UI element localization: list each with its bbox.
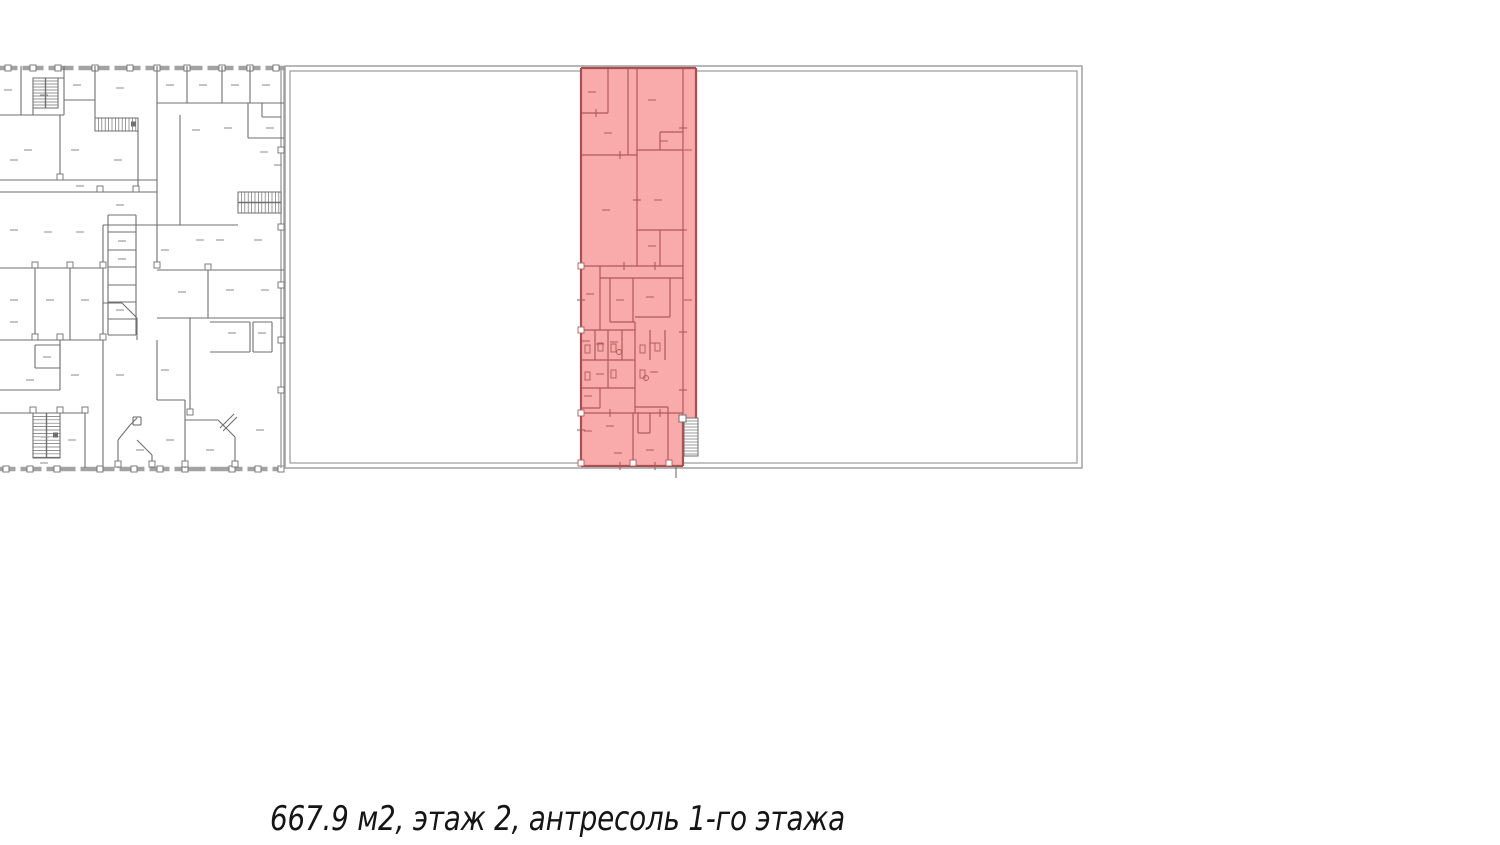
floor-plan-viewer: 667.9 м2, этаж 2, антресоль 1-го этажа — [0, 0, 1500, 845]
highlighted-premises-area[interactable] — [577, 68, 698, 478]
premises-caption: 667.9 м2, этаж 2, антресоль 1-го этажа — [270, 799, 845, 839]
left-building-plan — [0, 65, 284, 472]
floor-plan-canvas — [0, 0, 1500, 845]
